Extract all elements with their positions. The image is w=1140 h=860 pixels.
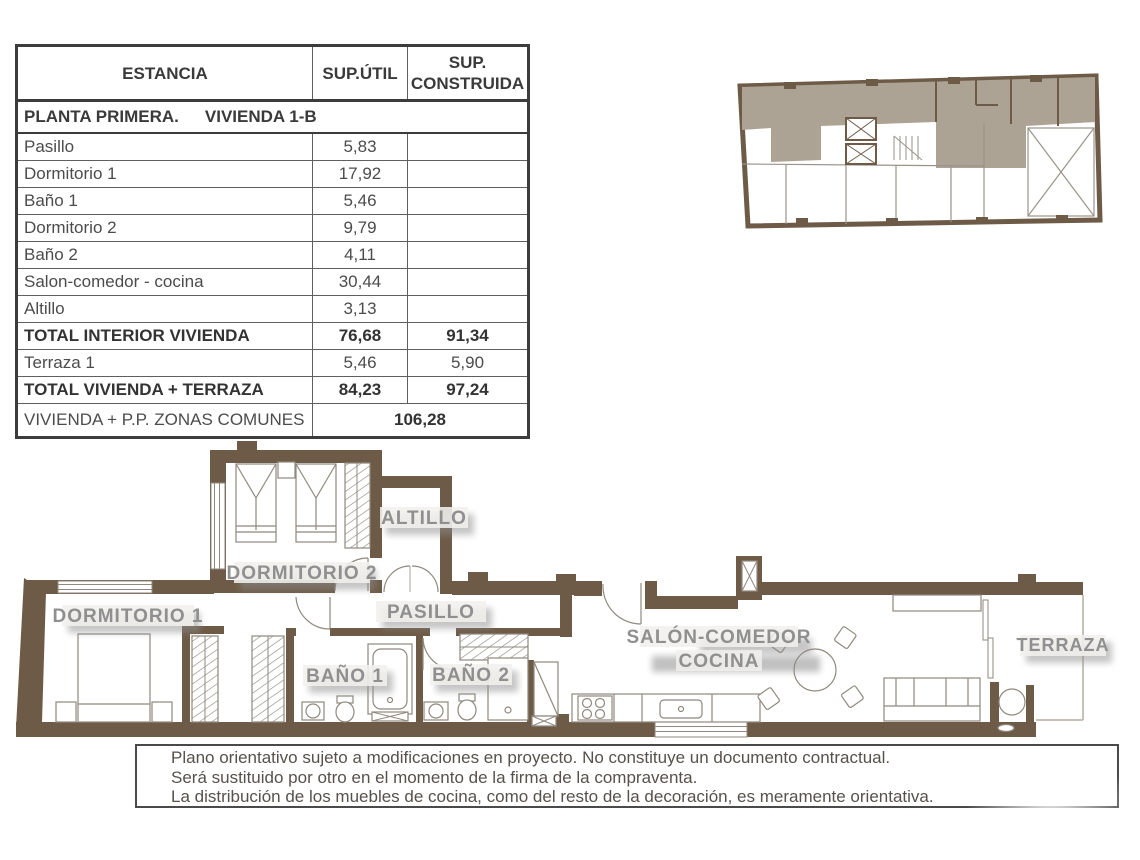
total-label: TOTAL VIVIENDA + TERRAZA (17, 377, 313, 404)
room-name: Baño 1 (17, 188, 313, 215)
section-title-right: VIVIENDA 1-B (205, 107, 317, 126)
tv-cabinet (893, 595, 981, 611)
room-construida (408, 242, 529, 269)
total-util: 84,23 (313, 377, 408, 404)
table-row: Baño 1 5,46 (17, 188, 529, 215)
table-row: Dormitorio 2 9,79 (17, 215, 529, 242)
floorplan-sheet: ESTANCIA SUP.ÚTIL SUP. CONSTRUIDA PLANTA… (0, 0, 1140, 860)
key-plan-terrace (1028, 128, 1094, 216)
room-name: Altillo (17, 296, 313, 323)
disclaimer-line3: La distribución de los muebles de cocina… (171, 787, 1109, 807)
total-terraza-row: TOTAL VIVIENDA + TERRAZA 84,23 97,24 (17, 377, 529, 404)
svg-text:ALTILLO: ALTILLO (381, 508, 467, 529)
table-row: Salon-comedor - cocina 30,44 (17, 269, 529, 296)
comunes-row: VIVIENDA + P.P. ZONAS COMUNES 106,28 (17, 404, 529, 438)
label-bano1: BAÑO 1 (303, 665, 393, 693)
table-row: Altillo 3,13 (17, 296, 529, 323)
sofa (884, 678, 980, 721)
room-construida (408, 215, 529, 242)
beds-dorm2 (236, 462, 336, 542)
room-name: Terraza 1 (17, 350, 313, 377)
room-util: 3,13 (313, 296, 408, 323)
disclaimer-box: Plano orientativo sujeto a modificacione… (135, 744, 1119, 808)
room-construida (408, 269, 529, 296)
svg-text:DORMITORIO 2: DORMITORIO 2 (227, 563, 378, 584)
room-util: 30,44 (313, 269, 408, 296)
bed-dorm1 (56, 634, 172, 722)
room-construida (408, 161, 529, 188)
furniture (56, 462, 1025, 732)
table-header-row: ESTANCIA SUP.ÚTIL SUP. CONSTRUIDA (17, 46, 529, 101)
room-name: Baño 2 (17, 242, 313, 269)
table-row: Pasillo 5,83 (17, 133, 529, 161)
label-bano2: BAÑO 2 (430, 664, 518, 692)
total-util: 76,68 (313, 323, 408, 350)
section-title-left: PLANTA PRIMERA. (24, 107, 179, 126)
label-salon: SALÓN-COMEDOR COCINA (626, 626, 820, 672)
room-util: 4,11 (313, 242, 408, 269)
room-construida: 5,90 (408, 350, 529, 377)
section-title-row: PLANTA PRIMERA.VIVIENDA 1-B (17, 101, 529, 134)
col-header-sup-construida: SUP. CONSTRUIDA (408, 46, 529, 101)
table-row: Baño 2 4,11 (17, 242, 529, 269)
room-construida (408, 296, 529, 323)
room-util: 5,46 (313, 350, 408, 377)
room-name: Salon-comedor - cocina (17, 269, 313, 296)
floor-plan: ALTILLO DORMITORIO 2 DORMITORIO 1 PASILL… (0, 438, 1140, 770)
svg-text:PASILLO: PASILLO (387, 602, 475, 623)
room-util: 17,92 (313, 161, 408, 188)
room-util: 9,79 (313, 215, 408, 242)
key-plan (726, 60, 1130, 244)
room-construida (408, 133, 529, 161)
total-label: TOTAL INTERIOR VIVIENDA (17, 323, 313, 350)
total-construida: 91,34 (408, 323, 529, 350)
svg-text:DORMITORIO 1: DORMITORIO 1 (53, 606, 204, 627)
comunes-label: VIVIENDA + P.P. ZONAS COMUNES (17, 404, 313, 438)
col-header-sup-util: SUP.ÚTIL (313, 46, 408, 101)
col-header-estancia: ESTANCIA (17, 46, 313, 101)
room-util: 5,46 (313, 188, 408, 215)
label-terraza: TERRAZA (1017, 635, 1113, 663)
table-row: Terraza 1 5,46 5,90 (17, 350, 529, 377)
svg-text:SALÓN-COMEDOR: SALÓN-COMEDOR (626, 626, 811, 648)
label-altillo: ALTILLO (380, 507, 474, 535)
label-pasillo: PASILLO (376, 601, 492, 629)
room-construida (408, 188, 529, 215)
svg-text:COCINA: COCINA (679, 651, 760, 672)
disclaimer-line1: Plano orientativo sujeto a modificacione… (171, 748, 1109, 768)
comunes-value: 106,28 (313, 404, 529, 438)
svg-text:BAÑO 2: BAÑO 2 (432, 664, 510, 686)
svg-text:BAÑO 1: BAÑO 1 (306, 665, 384, 687)
room-name: Dormitorio 1 (17, 161, 313, 188)
room-name: Dormitorio 2 (17, 215, 313, 242)
svg-text:TERRAZA: TERRAZA (1017, 635, 1110, 655)
room-name: Pasillo (17, 133, 313, 161)
shaft-box (742, 561, 757, 591)
key-plan-elevators (846, 118, 876, 164)
kitchen (572, 694, 760, 722)
label-dormitorio2: DORMITORIO 2 (227, 562, 378, 590)
label-dormitorio1: DORMITORIO 1 (53, 605, 204, 633)
disclaimer-line2: Será sustituido por otro en el momento d… (171, 768, 1109, 788)
total-construida: 97,24 (408, 377, 529, 404)
total-interior-row: TOTAL INTERIOR VIVIENDA 76,68 91,34 (17, 323, 529, 350)
table-row: Dormitorio 1 17,92 (17, 161, 529, 188)
area-table: ESTANCIA SUP.ÚTIL SUP. CONSTRUIDA PLANTA… (15, 44, 530, 439)
room-util: 5,83 (313, 133, 408, 161)
